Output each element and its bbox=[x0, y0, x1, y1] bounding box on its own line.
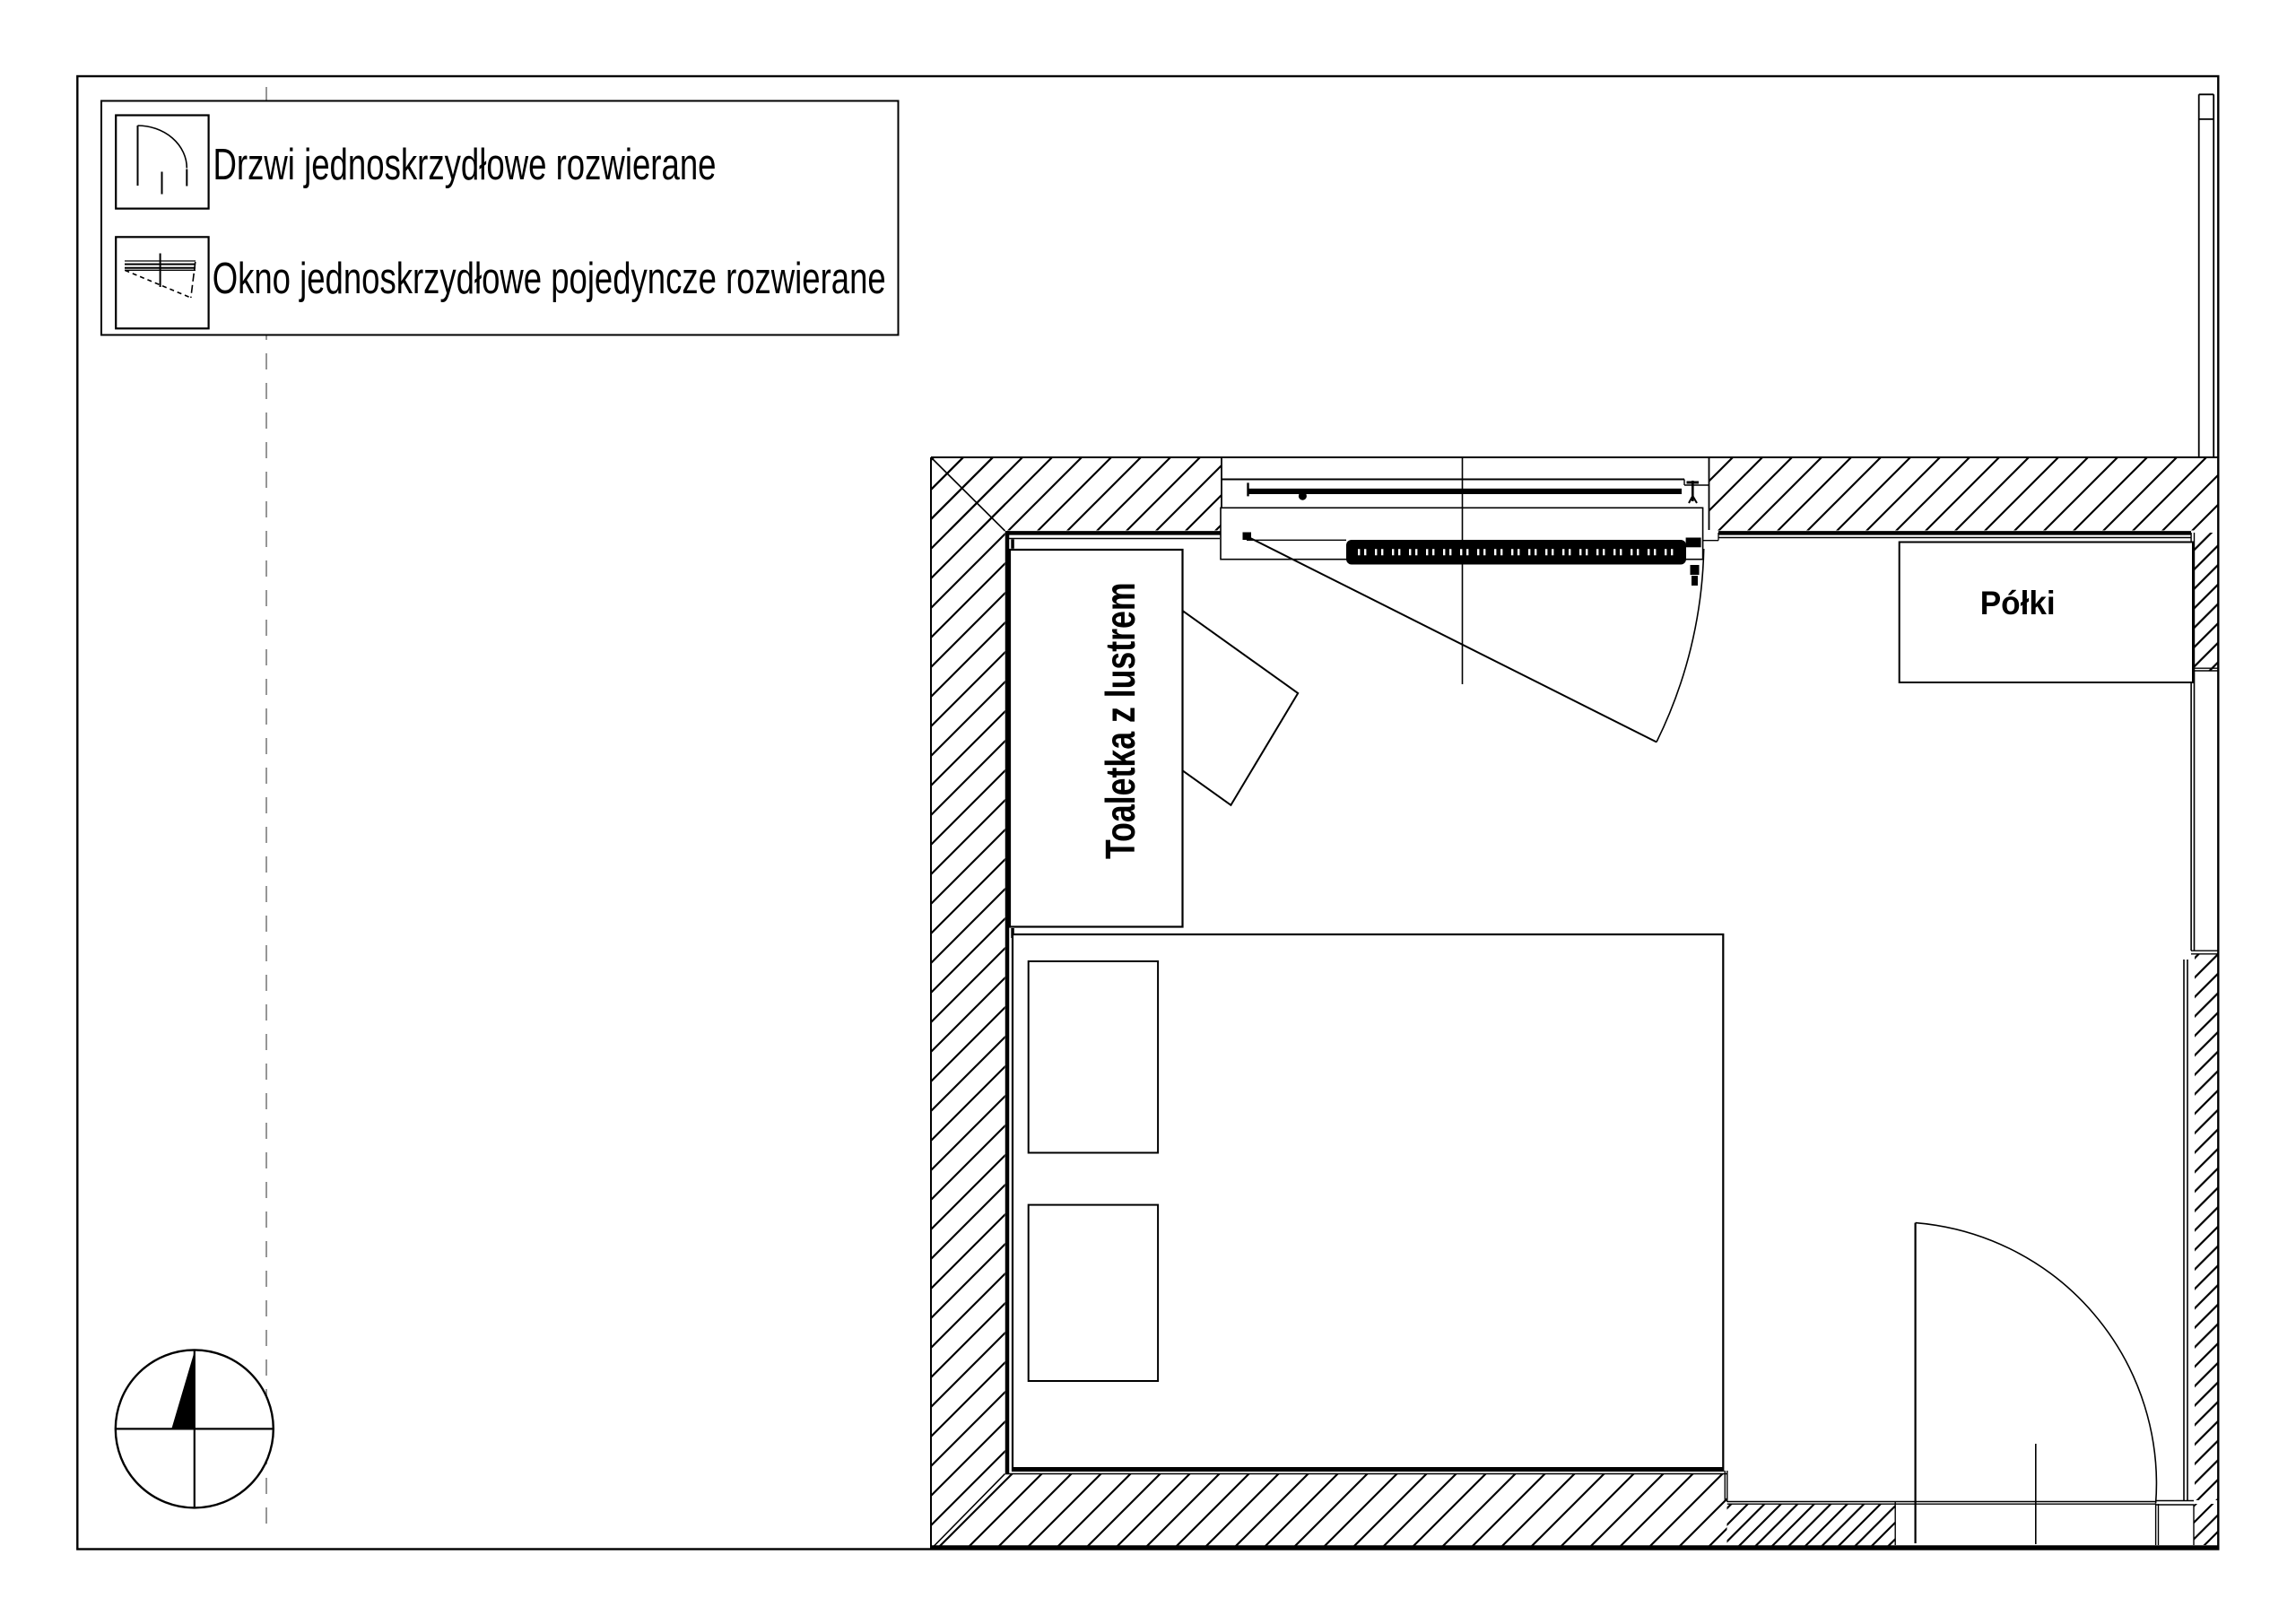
svg-text:Okno jednoskrzydłowe pojedyncz: Okno jednoskrzydłowe pojedyncze rozwiera… bbox=[213, 254, 886, 303]
svg-text:Toaletka z lustrem: Toaletka z lustrem bbox=[1097, 582, 1144, 859]
svg-text:Półki: Półki bbox=[1980, 584, 2056, 621]
svg-text:Drzwi jednoskrzydłowe rozwiera: Drzwi jednoskrzydłowe rozwierane bbox=[213, 140, 717, 189]
